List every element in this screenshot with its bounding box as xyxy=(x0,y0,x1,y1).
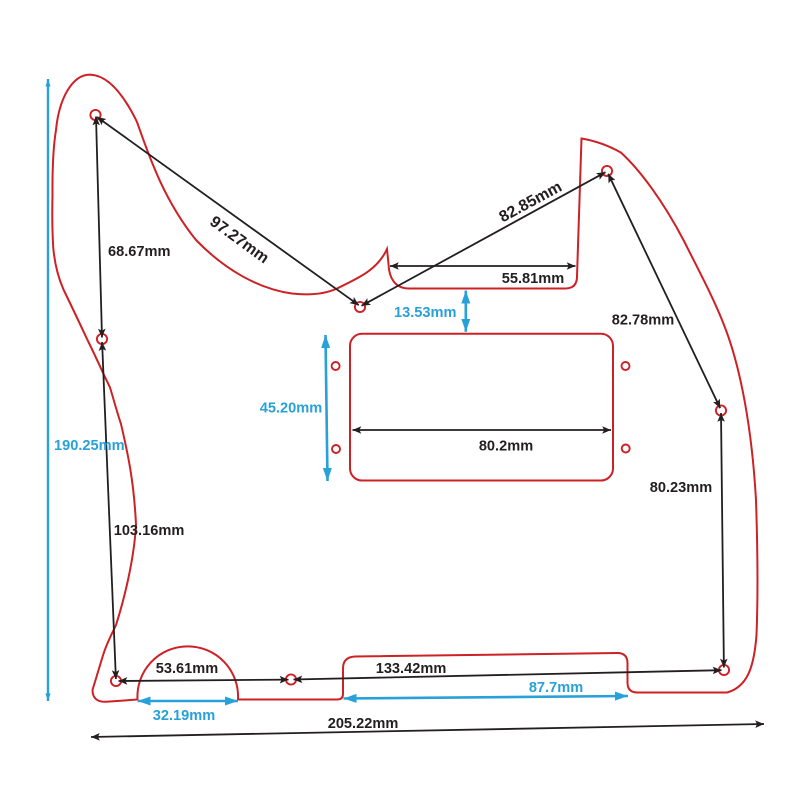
svg-text:80.2mm: 80.2mm xyxy=(479,439,533,455)
svg-text:205.22mm: 205.22mm xyxy=(328,716,399,732)
svg-text:45.20mm: 45.20mm xyxy=(260,401,322,417)
svg-text:133.42mm: 133.42mm xyxy=(376,661,447,677)
svg-text:32.19mm: 32.19mm xyxy=(153,708,215,724)
svg-text:82.85mm: 82.85mm xyxy=(497,179,565,227)
svg-text:55.81mm: 55.81mm xyxy=(502,271,564,287)
svg-text:68.67mm: 68.67mm xyxy=(108,244,170,260)
svg-text:190.25mm: 190.25mm xyxy=(54,438,125,454)
svg-text:87.7mm: 87.7mm xyxy=(529,680,583,696)
svg-text:103.16mm: 103.16mm xyxy=(114,523,185,539)
svg-text:13.53mm: 13.53mm xyxy=(394,305,456,321)
svg-text:80.23mm: 80.23mm xyxy=(650,480,712,496)
svg-text:53.61mm: 53.61mm xyxy=(156,661,218,677)
svg-text:82.78mm: 82.78mm xyxy=(612,313,674,329)
